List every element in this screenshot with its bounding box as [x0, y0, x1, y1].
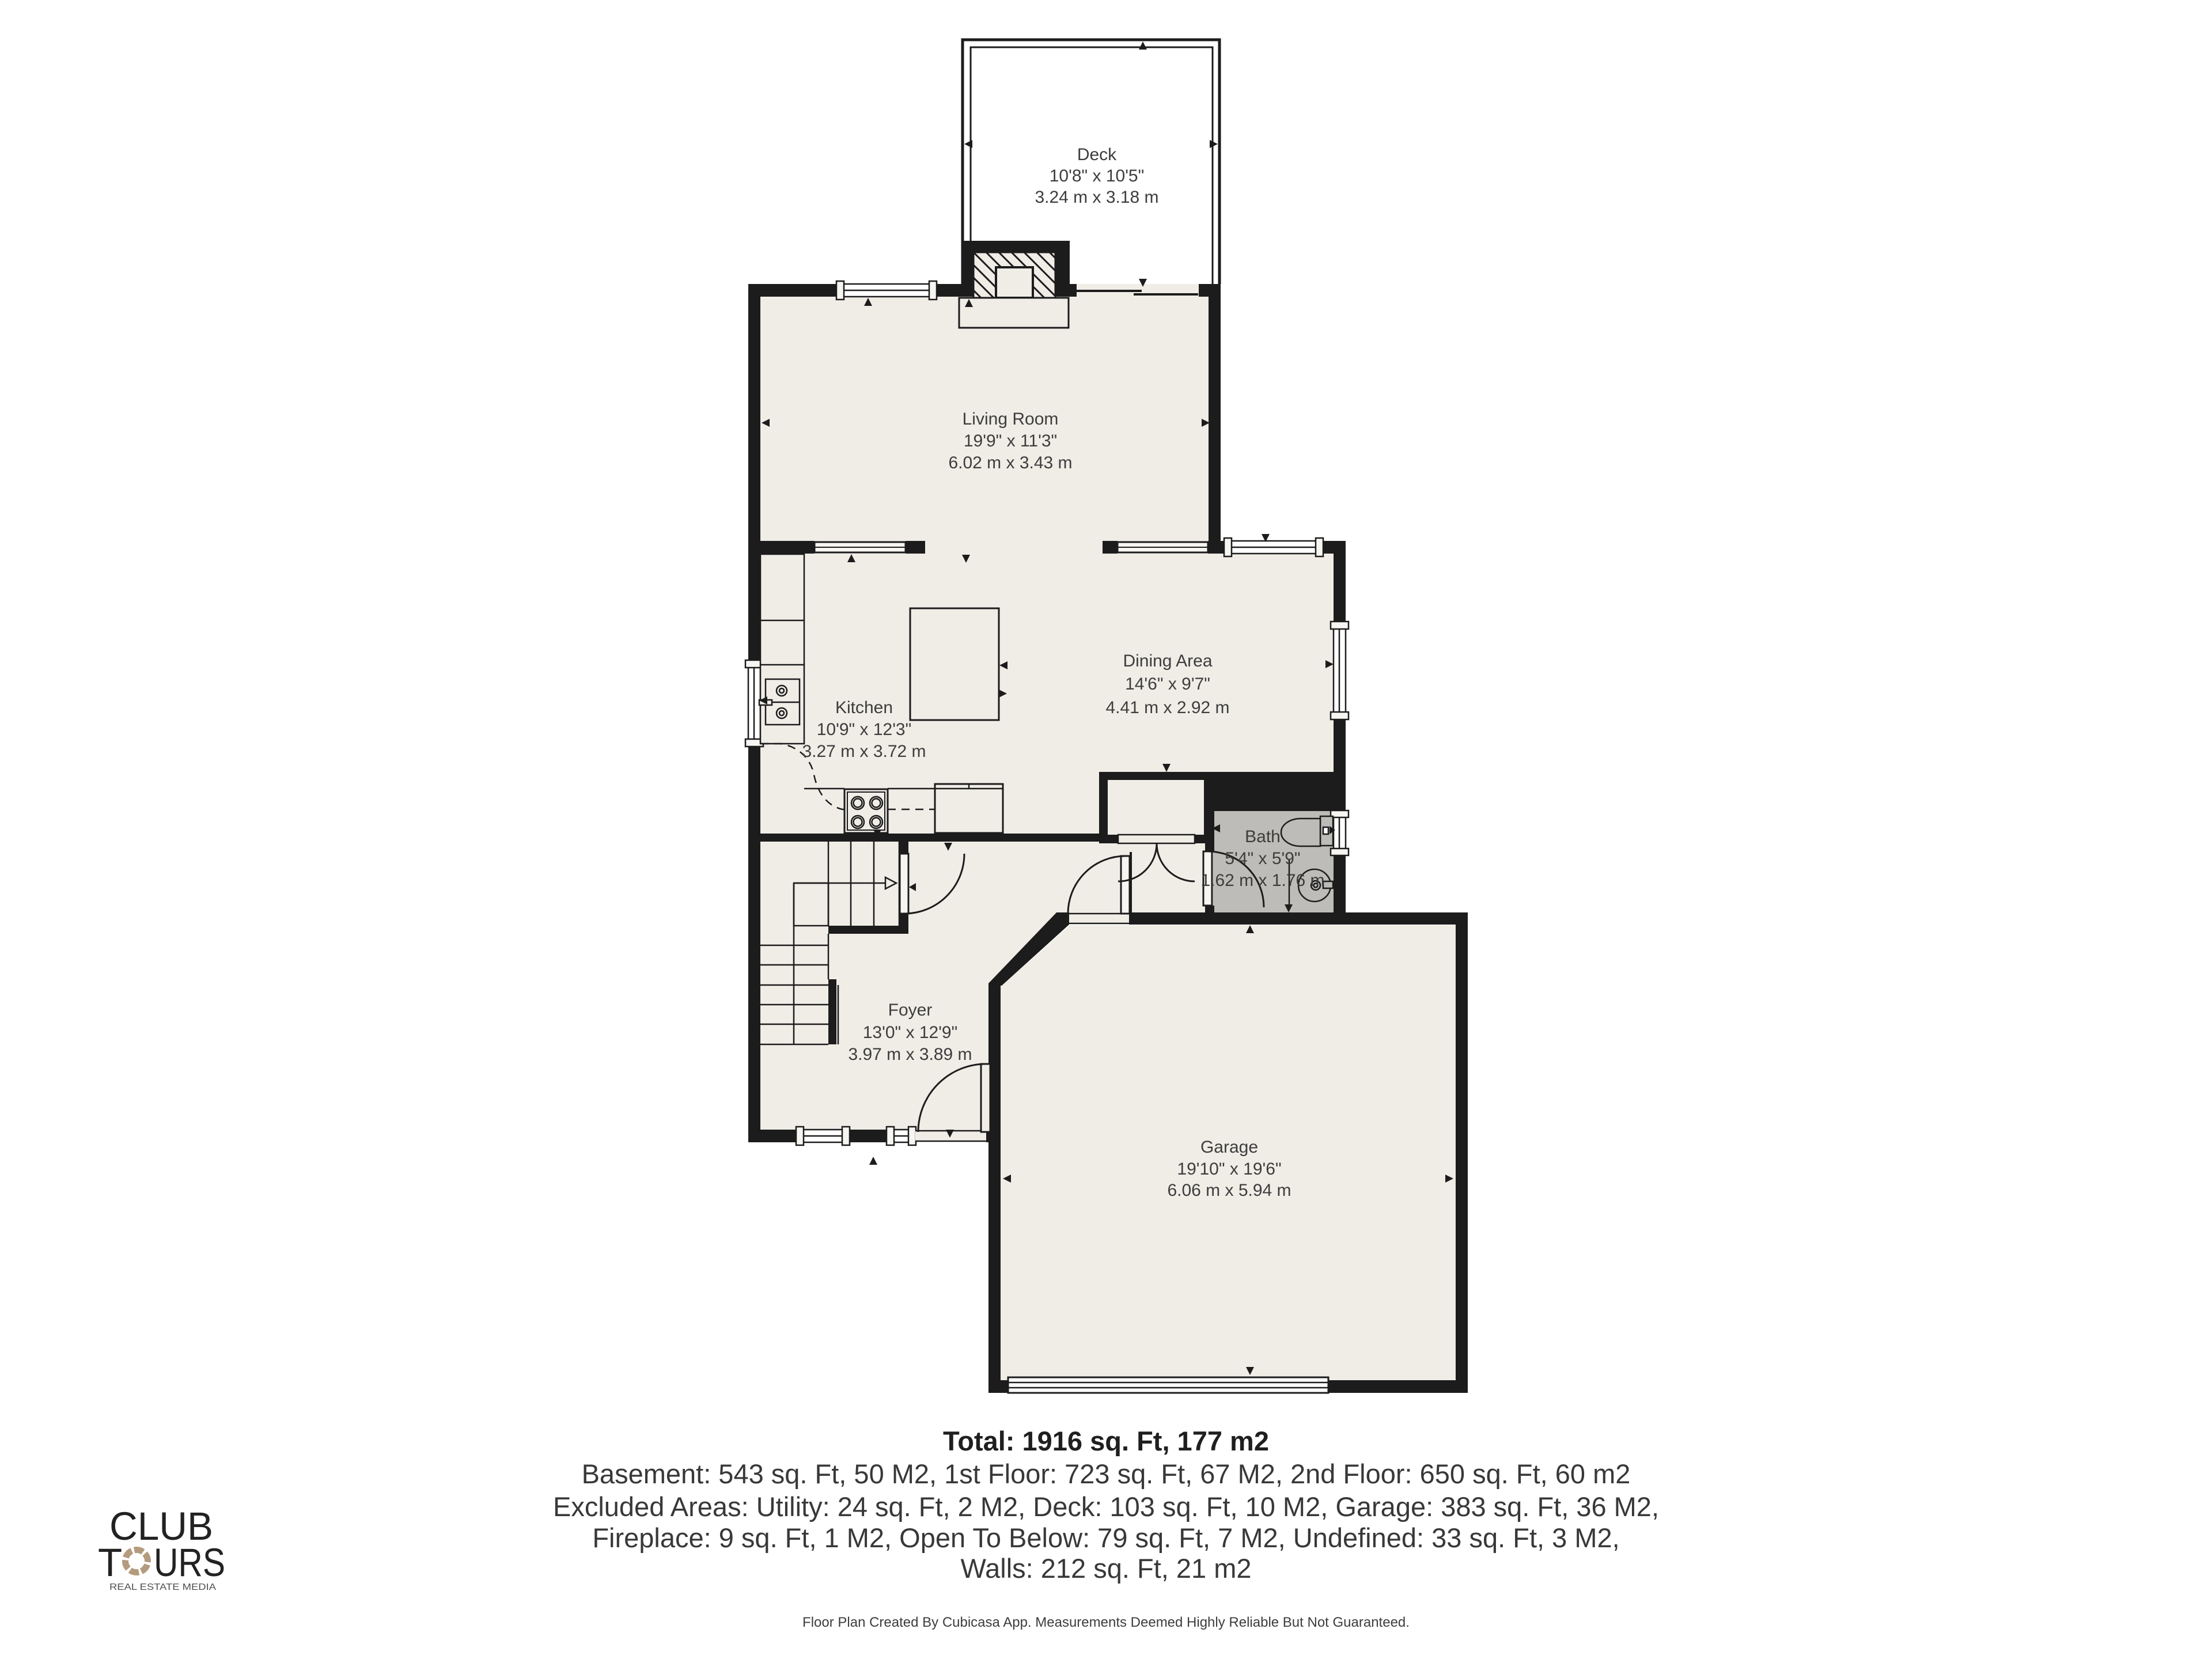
svg-text:1.62 m x 1.76 m: 1.62 m x 1.76 m [1200, 871, 1324, 890]
svg-text:5'4" x 5'9": 5'4" x 5'9" [1225, 849, 1300, 868]
svg-text:Total: 1916 sq. Ft, 177 m2: Total: 1916 sq. Ft, 177 m2 [943, 1426, 1269, 1456]
svg-text:Basement: 543 sq. Ft, 50 M2, 1: Basement: 543 sq. Ft, 50 M2, 1st Floor: … [582, 1459, 1631, 1489]
svg-text:13'0" x 12'9": 13'0" x 12'9" [863, 1023, 958, 1042]
svg-text:Fireplace: 9 sq. Ft, 1 M2, Ope: Fireplace: 9 sq. Ft, 1 M2, Open To Below… [592, 1522, 1619, 1553]
svg-text:REAL ESTATE MEDIA: REAL ESTATE MEDIA [109, 1582, 216, 1592]
svg-text:T: T [98, 1540, 122, 1585]
svg-text:Deck: Deck [1077, 145, 1117, 164]
svg-text:3.97 m x 3.89 m: 3.97 m x 3.89 m [848, 1045, 972, 1064]
svg-text:Kitchen: Kitchen [835, 698, 893, 717]
svg-text:6.02 m x 3.43 m: 6.02 m x 3.43 m [948, 453, 1072, 472]
svg-text:19'10" x 19'6": 19'10" x 19'6" [1177, 1160, 1281, 1179]
svg-text:Garage: Garage [1200, 1138, 1258, 1157]
svg-text:Floor Plan Created By Cubicasa: Floor Plan Created By Cubicasa App. Meas… [802, 1615, 1410, 1630]
svg-text:14'6" x 9'7": 14'6" x 9'7" [1125, 675, 1210, 694]
svg-text:Bath: Bath [1245, 827, 1281, 846]
svg-text:Walls: 212 sq. Ft, 21 m2: Walls: 212 sq. Ft, 21 m2 [961, 1553, 1252, 1584]
svg-text:3.24 m x 3.18 m: 3.24 m x 3.18 m [1035, 188, 1158, 207]
svg-text:Living Room: Living Room [963, 410, 1059, 429]
svg-text:Dining Area: Dining Area [1123, 652, 1212, 671]
svg-text:19'9" x 11'3": 19'9" x 11'3" [964, 431, 1057, 450]
svg-text:6.06 m x 5.94 m: 6.06 m x 5.94 m [1167, 1181, 1291, 1200]
svg-text:Foyer: Foyer [888, 1001, 933, 1020]
svg-text:URS: URS [154, 1540, 225, 1585]
svg-text:3.27 m x 3.72 m: 3.27 m x 3.72 m [802, 742, 926, 761]
svg-text:10'9" x 12'3": 10'9" x 12'3" [817, 720, 912, 739]
svg-text:Excluded Areas: Utility: 24 sq: Excluded Areas: Utility: 24 sq. Ft, 2 M2… [553, 1491, 1659, 1522]
svg-text:4.41 m x 2.92 m: 4.41 m x 2.92 m [1105, 698, 1229, 717]
svg-text:10'8" x 10'5": 10'8" x 10'5" [1050, 166, 1145, 185]
